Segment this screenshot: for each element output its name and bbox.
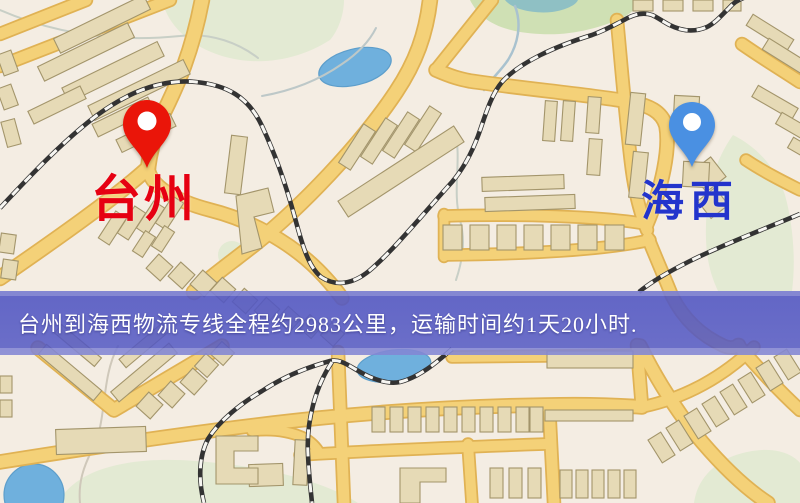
- info-banner: 台州到海西物流专线全程约2983公里，运输时间约1天20小时.: [0, 291, 800, 355]
- banner-text: 台州到海西物流专线全程约2983公里，运输时间约1天20小时.: [18, 307, 638, 339]
- map-canvas: [0, 0, 800, 503]
- destination-label: 海西: [641, 181, 739, 224]
- origin-label: 台州: [91, 174, 197, 224]
